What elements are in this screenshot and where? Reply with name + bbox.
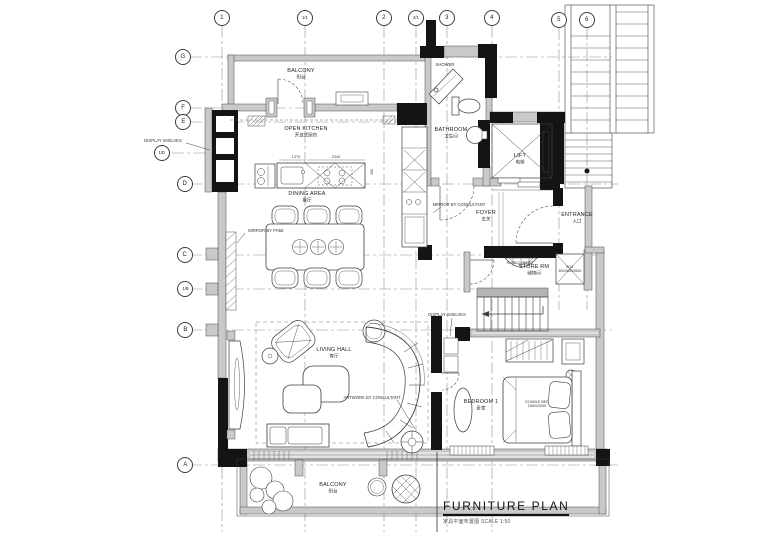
grid-bubble-col-6: 6: [579, 12, 595, 28]
annotation-mirror-consultant: MIRROR BY CONSULTANT: [433, 203, 486, 207]
exterior-stairs: [565, 5, 654, 188]
room-label-open-kitchen: OPEN KITCHEN开放式厨房: [267, 125, 346, 139]
grid-bubble-row-e: E: [175, 114, 191, 130]
room-label-dining: DINING AREA餐厅: [273, 190, 341, 204]
grid-bubble-col-2: 2: [376, 10, 392, 26]
grid-bubble-row-d: D: [177, 176, 193, 192]
grid-bubble-col-1: 1: [214, 10, 230, 26]
dimension-kitchen-depth: 450: [370, 169, 374, 175]
grid-bubble-col-2-1: 2/1: [408, 10, 424, 26]
room-label-bathroom: BATHROOM卫生间: [421, 126, 480, 140]
room-label-living: LIVING HALL客厅: [302, 346, 366, 360]
dimension-kitchen-island: 2345: [332, 155, 340, 159]
grid-bubble-col-5: 5: [551, 12, 567, 28]
grid-bubble-row-1-b: 1/B: [177, 281, 193, 297]
grid-bubble-row-a: A: [177, 457, 193, 473]
internal-stair: [477, 297, 548, 331]
living-furniture: [227, 317, 428, 453]
furniture-label-double-bed: DOUBLE BED1500X2000: [525, 400, 548, 408]
annotation-shoe-cabinet: SHOE CABINET: [507, 261, 534, 265]
room-label-balcony-top: BALCONY阳台: [276, 67, 326, 81]
drawing-title: FURNITURE PLAN: [443, 499, 569, 516]
grid-bubble-col-1-1: 1/1: [297, 10, 313, 26]
annotation-mirror-ffe: MIRROR BY FF&E: [248, 229, 284, 233]
room-label-lift: LIFT电梯: [509, 152, 531, 166]
annotation-display-shelves-left: DISPLAY SHELVES: [144, 139, 182, 143]
annotation-display-shelves-mid: DISPLAY SHELVES: [428, 313, 466, 317]
room-label-shower: SHOWER: [436, 63, 455, 67]
room-label-bedroom1: BEDROOM 1卧室: [450, 398, 513, 412]
grid-bubble-col-4: 4: [484, 10, 500, 26]
floor-plan-drawing: [0, 0, 780, 551]
dining-furniture: [266, 206, 364, 288]
room-label-store: STORE RM储物间: [507, 263, 562, 277]
bedroom-furniture: [444, 338, 588, 455]
grid-bubble-row-b: B: [177, 322, 193, 338]
grid-bubble-row-g: G: [175, 49, 191, 65]
annotation-artwork: ARTWORK BY CONSULTANT: [343, 396, 400, 400]
grid-bubble-row-1-d: 1/D: [154, 145, 170, 161]
title-block: FURNITURE PLAN 家具平面布置图 SCALE 1:50: [443, 497, 578, 532]
grid-bubble-row-c: C: [177, 247, 193, 263]
grid-bubble-col-3: 3: [439, 10, 455, 26]
drawing-subtitle: 家具平面布置图 SCALE 1:50: [443, 517, 511, 525]
room-label-entrance: ENTRANCE入口: [548, 211, 605, 225]
dimension-kitchen-left: 1375: [292, 155, 300, 159]
room-label-balcony-bottom: BALCONY阳台: [308, 481, 358, 495]
annotation-washing-machine: W.M.600X600X600: [559, 265, 582, 273]
room-label-foyer: FOYER玄关: [468, 209, 504, 223]
floor-plan-canvas: 1 1/1 2 2/1 3 4 5 6 G F E 1/D D C 1/B B …: [0, 0, 780, 551]
